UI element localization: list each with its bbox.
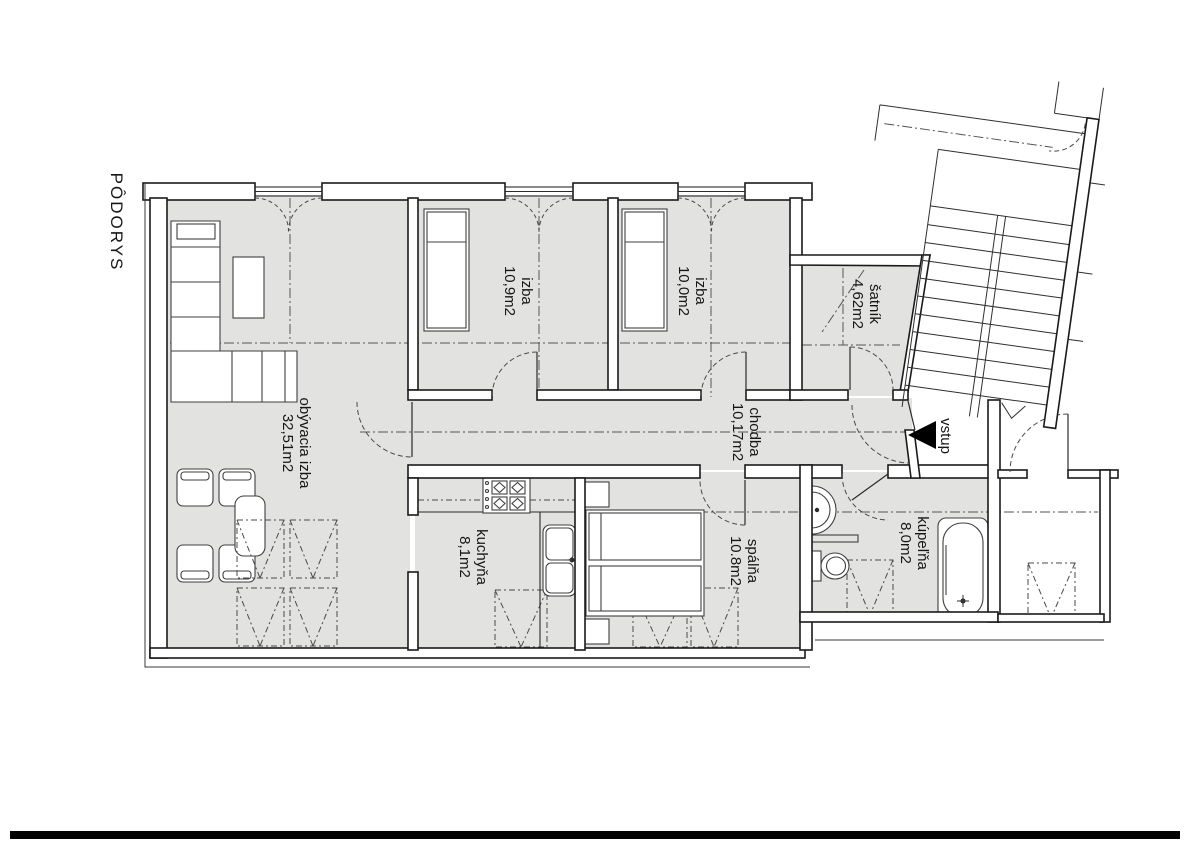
chair — [177, 545, 213, 582]
svg-text:10,9m2: 10,9m2 — [501, 266, 518, 316]
svg-text:vstup: vstup — [937, 418, 954, 454]
stove — [483, 478, 530, 513]
svg-text:4,62m2: 4,62m2 — [849, 279, 866, 329]
toilet — [812, 551, 849, 581]
svg-text:kuchyňa: kuchyňa — [473, 529, 490, 586]
plan-title: PÔDORYS — [107, 173, 126, 272]
stair-treads — [905, 225, 1069, 405]
bathtub — [938, 518, 988, 622]
hall-floor — [405, 398, 912, 470]
svg-text:izba: izba — [692, 277, 709, 305]
label-closet: šatník 4,62m2 — [849, 279, 883, 329]
floor-plan-svg: PÔDORYS obývacia izba 32,51m2 izba 10,9m… — [0, 0, 1189, 841]
label-hall: chodba 10,17m2 — [729, 403, 763, 461]
label-kitchen: kuchyňa 8,1m2 — [456, 529, 490, 586]
kitchen-sink — [543, 525, 576, 596]
chair — [177, 469, 213, 506]
svg-text:10.8m2: 10.8m2 — [727, 536, 744, 586]
label-entrance: vstup — [937, 418, 954, 454]
svg-text:8,0m2: 8,0m2 — [897, 522, 914, 564]
floor-plan-page: PÔDORYS obývacia izba 32,51m2 izba 10,9m… — [0, 0, 1189, 841]
svg-text:spálňa: spálňa — [744, 539, 761, 584]
svg-text:10,0m2: 10,0m2 — [675, 266, 692, 316]
door-neighbour — [1010, 414, 1068, 472]
wardrobe-module — [1028, 563, 1075, 618]
stair-direction-arrow — [1000, 403, 1026, 420]
svg-text:izba: izba — [518, 277, 535, 305]
label-bathroom: kúpeľňa 8,0m2 — [897, 516, 931, 570]
svg-text:kúpeľňa: kúpeľňa — [914, 516, 931, 570]
svg-text:10,17m2: 10,17m2 — [729, 403, 746, 461]
bed-room2 — [622, 209, 667, 331]
svg-text:8,1m2: 8,1m2 — [456, 536, 473, 578]
dining-table — [235, 496, 265, 556]
coffee-table — [233, 257, 264, 318]
svg-text:šatník: šatník — [866, 284, 883, 325]
nightstand — [584, 482, 609, 507]
label-bedroom: spálňa 10.8m2 — [727, 536, 761, 586]
svg-text:32,51m2: 32,51m2 — [279, 414, 296, 472]
door-landing — [1049, 119, 1085, 155]
svg-text:chodba: chodba — [746, 407, 763, 457]
bed-room1 — [424, 209, 469, 331]
svg-text:obývacia izba: obývacia izba — [296, 398, 313, 490]
footer-bar — [10, 831, 1180, 839]
nightstand — [584, 619, 609, 644]
